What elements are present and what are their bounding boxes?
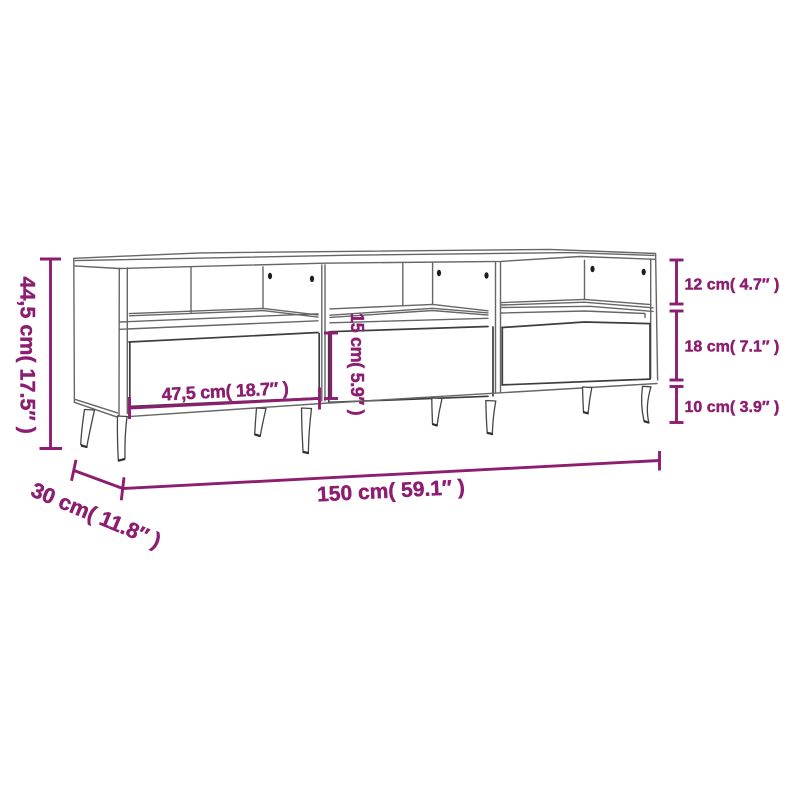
svg-text:12 cm( 4.7″ ): 12 cm( 4.7″ ) [685, 277, 780, 294]
svg-text:150 cm( 59.1″ ): 150 cm( 59.1″ ) [317, 476, 466, 507]
svg-text:15 cm( 5.9″ ): 15 cm( 5.9″ ) [347, 313, 367, 415]
svg-text:18 cm( 7.1″ ): 18 cm( 7.1″ ) [685, 339, 780, 356]
svg-text:44,5 cm( 17.5″ ): 44,5 cm( 17.5″ ) [16, 277, 40, 434]
svg-text:30 cm( 11.8″ ): 30 cm( 11.8″ ) [28, 478, 165, 553]
svg-text:10 cm( 3.9″ ): 10 cm( 3.9″ ) [685, 399, 780, 416]
